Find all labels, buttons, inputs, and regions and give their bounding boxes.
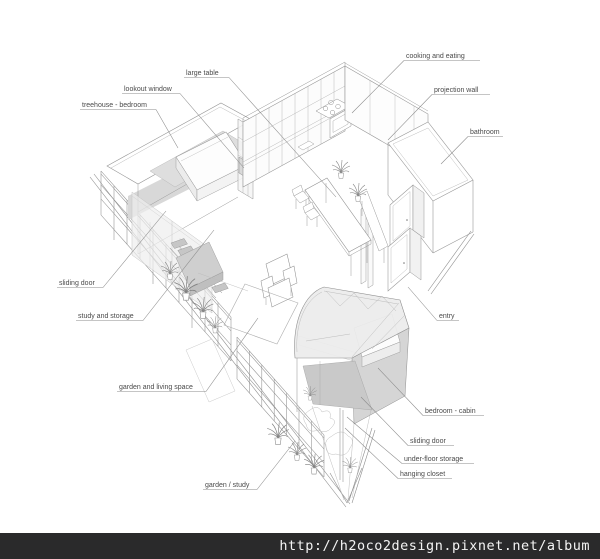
annotation-text-garden-and-living-space: garden and living space <box>119 384 193 391</box>
annotation-leader-garden-study <box>257 441 295 490</box>
glazed-facade-lower <box>237 337 343 482</box>
annotation-text-treehouse-bedroom: treehouse - bedroom <box>82 102 147 109</box>
annotation-text-sliding-door-right: sliding door <box>410 438 446 445</box>
annotation-text-lookout-window: lookout window <box>124 86 173 93</box>
annotation-text-under-floor-storage: under-floor storage <box>404 456 463 463</box>
armchair <box>261 254 297 307</box>
cabin-base-lines <box>312 406 371 500</box>
annotation-text-garden-study: garden / study <box>205 482 250 489</box>
kitchen-wall <box>243 62 351 187</box>
annotation-text-entry: entry <box>439 313 455 320</box>
watermark-bar: http://h2oco2design.pixnet.net/album <box>0 533 600 559</box>
annotation-text-sliding-door-left: sliding door <box>59 280 95 287</box>
architectural-drawing-page: cooking and eatinglarge tablelookout win… <box>0 0 600 559</box>
annotation-entry: entry <box>408 287 459 321</box>
garden-plants-lower <box>267 422 357 474</box>
annotation-garden-study: garden / study <box>203 441 295 490</box>
annotation-text-bathroom: bathroom <box>470 129 500 136</box>
under-floor-storage-hatch <box>186 339 235 402</box>
axonometric-apartment-drawing: cooking and eatinglarge tablelookout win… <box>0 0 600 533</box>
annotation-text-cooking-and-eating: cooking and eating <box>406 53 465 60</box>
treehouse-bedroom-volume <box>107 103 253 313</box>
annotation-text-projection-wall: projection wall <box>434 87 479 94</box>
table-plant <box>332 160 350 179</box>
dining-table <box>292 160 388 276</box>
bathroom-walls <box>388 122 473 253</box>
annotation-text-bedroom-cabin: bedroom - cabin <box>425 408 476 415</box>
annotation-text-large-table: large table <box>186 70 219 77</box>
watermark-url: http://h2oco2design.pixnet.net/album <box>279 538 590 554</box>
annotation-leader-under-floor-storage <box>347 417 402 464</box>
closet-sketch-lines <box>304 407 353 455</box>
annotation-text-study-and-storage: study and storage <box>78 313 134 320</box>
annotation-text-hanging-closet: hanging closet <box>400 471 445 478</box>
